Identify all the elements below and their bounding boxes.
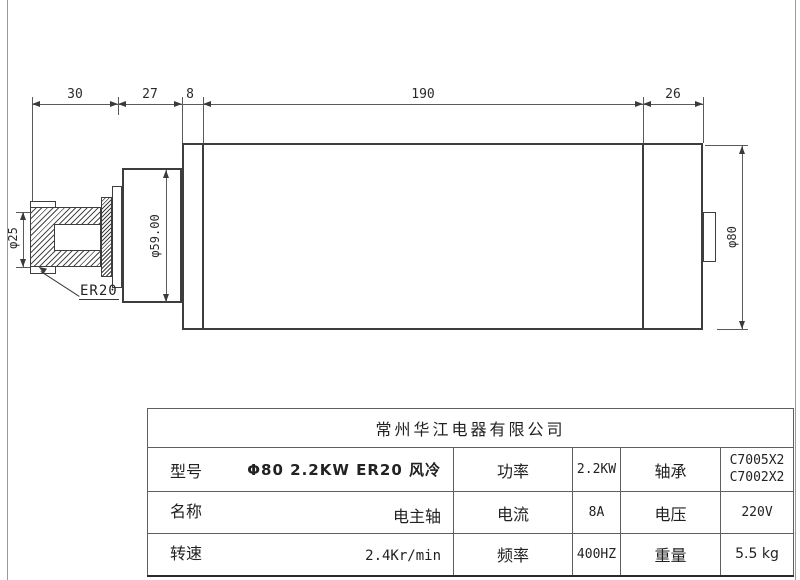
speed-value: 2.4Kr/min — [365, 540, 441, 564]
name-value: 电主轴 — [393, 498, 441, 527]
extension-line — [32, 97, 33, 201]
dimension-line-top — [32, 104, 703, 105]
dim-label-190: 190 — [403, 87, 443, 102]
voltage-label: 电压 — [621, 492, 721, 534]
model-value: Φ80 2.2KW ER20 风冷 — [247, 459, 441, 480]
bearing-value: C7005X2 C7002X2 — [721, 448, 794, 492]
leader-underline — [79, 299, 119, 300]
dim-arrow — [643, 101, 651, 107]
extension-line — [717, 329, 748, 330]
sheet-right-border — [795, 0, 796, 580]
spindle-drawing-sheet: 30 27 8 190 26 φ25 φ59.00 — [0, 0, 800, 580]
dim-label-26: 26 — [658, 87, 688, 102]
dim-label-27: 27 — [135, 87, 165, 102]
dim-arrow — [20, 212, 26, 220]
power-value: 2.2KW — [573, 448, 621, 492]
dim-label-dia59: φ59.00 — [148, 214, 162, 257]
dim-arrow — [20, 259, 26, 267]
spindle-housing-outline — [182, 143, 703, 330]
bearing-label: 轴承 — [621, 448, 721, 492]
company-name: 常州华江电器有限公司 — [148, 409, 794, 448]
frequency-label: 频率 — [454, 534, 573, 576]
dim-arrow — [163, 294, 169, 302]
extension-line — [703, 97, 704, 143]
voltage-value: 220V — [721, 492, 794, 534]
dimension-line-dia59 — [166, 170, 167, 302]
shaft-step-section — [101, 197, 112, 277]
power-label: 功率 — [454, 448, 573, 492]
dim-arrow — [118, 101, 126, 107]
current-value: 8A — [573, 492, 621, 534]
table-row-name: 名称 电主轴 电流 8A 电压 220V — [148, 492, 794, 534]
frequency-value: 400HZ — [573, 534, 621, 576]
table-row-speed: 转速 2.4Kr/min 频率 400HZ 重量 5.5 kg — [148, 534, 794, 576]
name-label: 名称 — [170, 498, 202, 527]
dimension-line-dia80 — [742, 146, 743, 329]
weight-label: 重量 — [621, 534, 721, 576]
dim-label-dia25: φ25 — [6, 227, 20, 249]
dim-arrow — [739, 146, 745, 154]
model-label: 型号 — [170, 458, 202, 482]
leader-line — [40, 271, 79, 297]
dim-arrow — [739, 321, 745, 329]
dim-arrow — [163, 170, 169, 178]
dim-arrow — [635, 101, 643, 107]
rear-connector-outline — [703, 212, 716, 262]
sheet-left-border — [7, 0, 8, 580]
extension-line — [16, 267, 30, 268]
spec-table: 常州华江电器有限公司 型号 Φ80 2.2KW ER20 风冷 功率 2.2KW… — [147, 408, 794, 577]
dim-arrow — [32, 101, 40, 107]
table-row-company: 常州华江电器有限公司 — [148, 409, 794, 448]
collet-bore — [54, 224, 101, 251]
spacer-disc-outline — [112, 186, 122, 288]
dim-arrow — [203, 101, 211, 107]
rear-cap-joint-line — [642, 145, 644, 328]
dim-arrow — [695, 101, 703, 107]
dim-label-8: 8 — [178, 87, 202, 102]
extension-line — [182, 97, 183, 143]
current-label: 电流 — [454, 492, 573, 534]
front-cap-joint-line — [202, 145, 204, 328]
dim-label-30: 30 — [60, 87, 90, 102]
table-row-model: 型号 Φ80 2.2KW ER20 风冷 功率 2.2KW 轴承 C7005X2… — [148, 448, 794, 492]
weight-value: 5.5 kg — [721, 534, 794, 576]
collet-type-label: ER20 — [80, 283, 118, 299]
dim-label-dia80: φ80 — [725, 226, 739, 248]
dim-arrow — [110, 101, 118, 107]
speed-label: 转速 — [170, 540, 202, 569]
